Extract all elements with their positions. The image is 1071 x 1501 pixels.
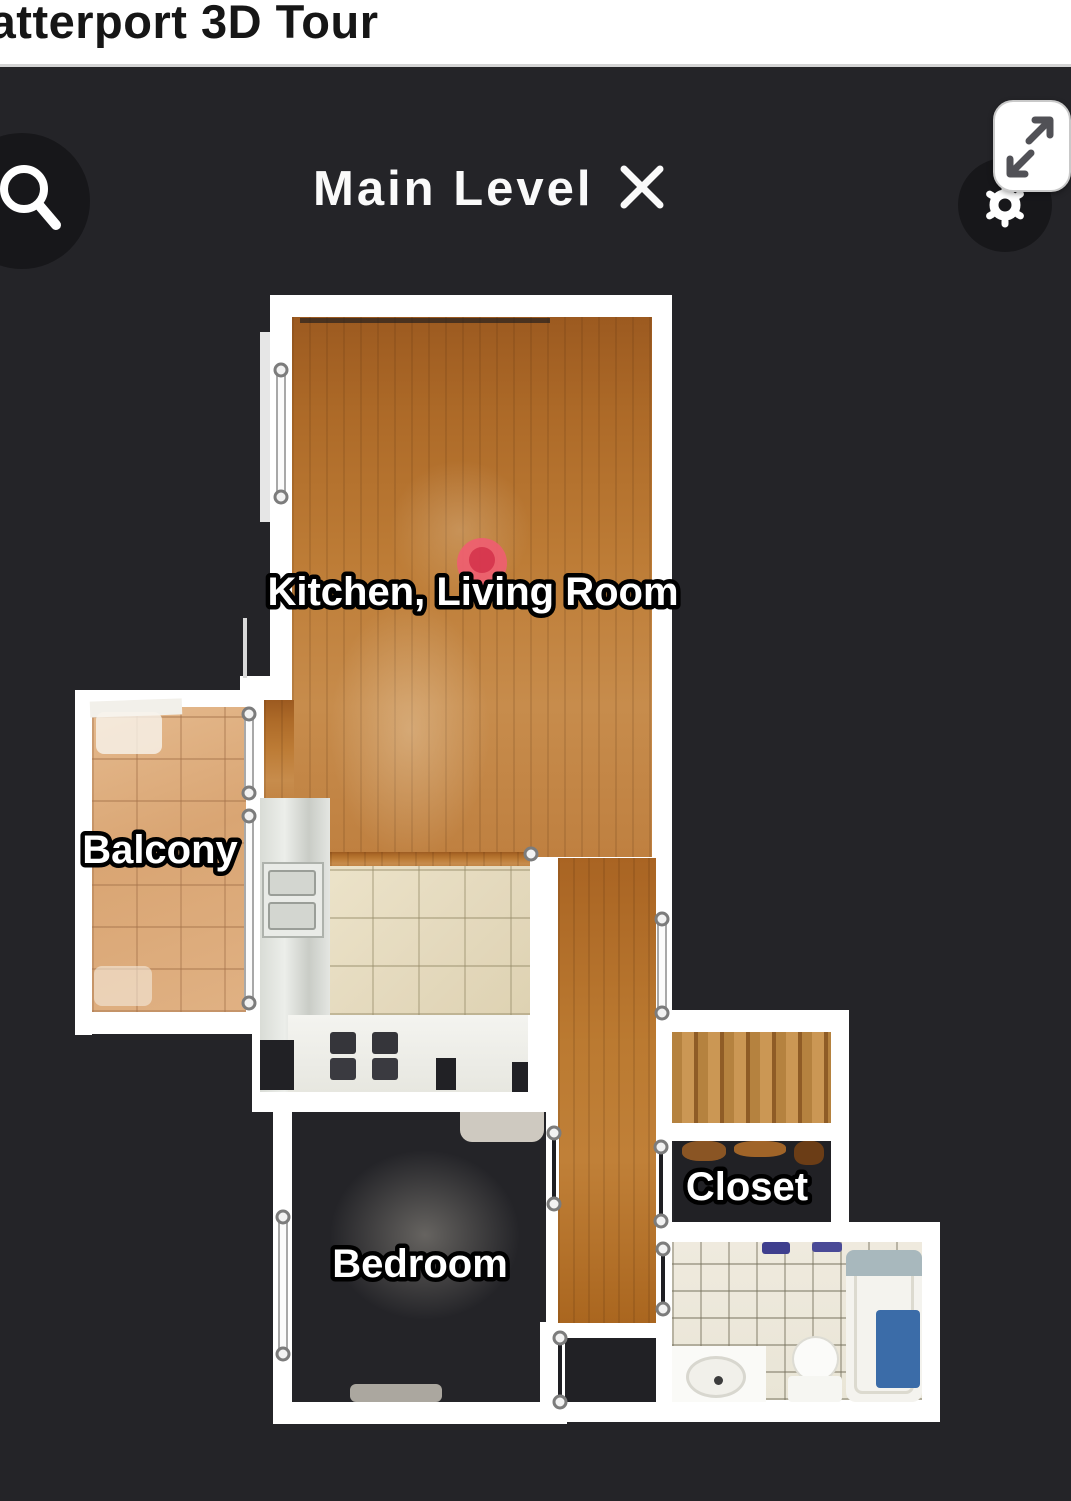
wall-node: [276, 1210, 291, 1225]
floor-kitchen: [326, 866, 530, 1015]
wall: [556, 1322, 658, 1338]
balcony-light-patch: [96, 712, 162, 754]
closet-debris: [682, 1141, 726, 1161]
level-title: Main Level: [313, 161, 594, 217]
search-icon: [0, 159, 74, 239]
wall-node: [547, 1197, 562, 1212]
viewpoint-marker-core: [469, 547, 495, 573]
expand-arrows-icon: [995, 102, 1069, 190]
door-marker: [658, 1249, 668, 1309]
expand-button[interactable]: [993, 100, 1071, 192]
floor-living-room: [264, 700, 294, 812]
stove-burner: [372, 1058, 398, 1080]
wall-node: [242, 996, 257, 1011]
floorplan-canvas[interactable]: Kitchen, Living Room Balcony Bedroom Clo…: [0, 0, 1071, 1501]
towel-blue: [762, 1242, 790, 1254]
wall-node: [547, 1126, 562, 1141]
wall-node: [656, 1242, 671, 1257]
wall-node: [656, 1302, 671, 1317]
wall-line: [243, 618, 247, 678]
window-marker: [276, 370, 286, 497]
wall-node: [242, 707, 257, 722]
wall: [831, 1010, 849, 1242]
vestibule-unscanned-area: [558, 1338, 656, 1402]
stove-burner: [330, 1058, 356, 1080]
wall: [75, 690, 92, 1035]
wall-node: [524, 847, 539, 862]
floor-highlight: [330, 1150, 520, 1320]
wall: [528, 855, 558, 1105]
wall-node: [276, 1347, 291, 1362]
wall-node: [655, 1006, 670, 1021]
kitchen-sink-basin: [268, 902, 316, 930]
wall: [660, 1121, 831, 1141]
stove-burner: [330, 1032, 356, 1054]
door-marker: [555, 1338, 565, 1402]
wall: [922, 1222, 940, 1422]
wall-node: [553, 1395, 568, 1410]
wall-node: [553, 1331, 568, 1346]
stove-burner: [372, 1032, 398, 1054]
window-sill: [260, 332, 270, 522]
scan-hole: [436, 1058, 456, 1090]
balcony-light-patch: [94, 966, 152, 1006]
window-marker: [278, 1217, 288, 1354]
bedroom-rug: [350, 1384, 442, 1402]
wall-node: [274, 490, 289, 505]
towel-blue: [812, 1242, 842, 1252]
wall-node: [242, 809, 257, 824]
viewpoint-marker[interactable]: [457, 538, 507, 588]
wall-node: [274, 363, 289, 378]
kitchen-sink-basin: [268, 870, 316, 896]
door-marker: [656, 1147, 666, 1221]
closet-debris: [794, 1141, 824, 1165]
closet-shelves: [672, 1032, 831, 1123]
sink-drain: [714, 1376, 723, 1385]
close-icon[interactable]: [615, 160, 669, 214]
window-marker: [244, 816, 254, 1003]
floor-highlight: [330, 600, 490, 860]
door-marker: [549, 1133, 559, 1204]
matterport-floorplan-view: { "header": { "title": "Matterport 3D To…: [0, 0, 1071, 1501]
living-room-top-shadow: [300, 318, 550, 323]
closet-debris: [734, 1141, 786, 1157]
wall: [654, 1400, 940, 1422]
scan-hole: [260, 1040, 294, 1090]
wall-node: [242, 786, 257, 801]
floor-hallway: [558, 858, 656, 1323]
wall: [75, 1012, 267, 1034]
wall: [270, 295, 672, 317]
page-title: Matterport 3D Tour: [0, 0, 379, 48]
wall: [273, 1402, 567, 1424]
wall: [252, 1090, 567, 1112]
scan-hole: [512, 1062, 528, 1092]
wall-node: [655, 912, 670, 927]
window-marker: [244, 714, 254, 793]
bathtub-ledge: [846, 1250, 922, 1276]
wall-node: [654, 1214, 669, 1229]
wall: [654, 1010, 849, 1032]
bathtub-mat: [876, 1310, 920, 1388]
browser-header: Matterport 3D Tour: [0, 0, 1071, 67]
toilet-tank: [788, 1376, 842, 1402]
wall-node: [654, 1140, 669, 1155]
stove: [288, 1015, 528, 1092]
wall: [654, 1222, 940, 1242]
floor-highlight: [390, 460, 530, 600]
window-marker: [657, 919, 667, 1013]
bedroom-door-swing: [460, 1112, 544, 1142]
